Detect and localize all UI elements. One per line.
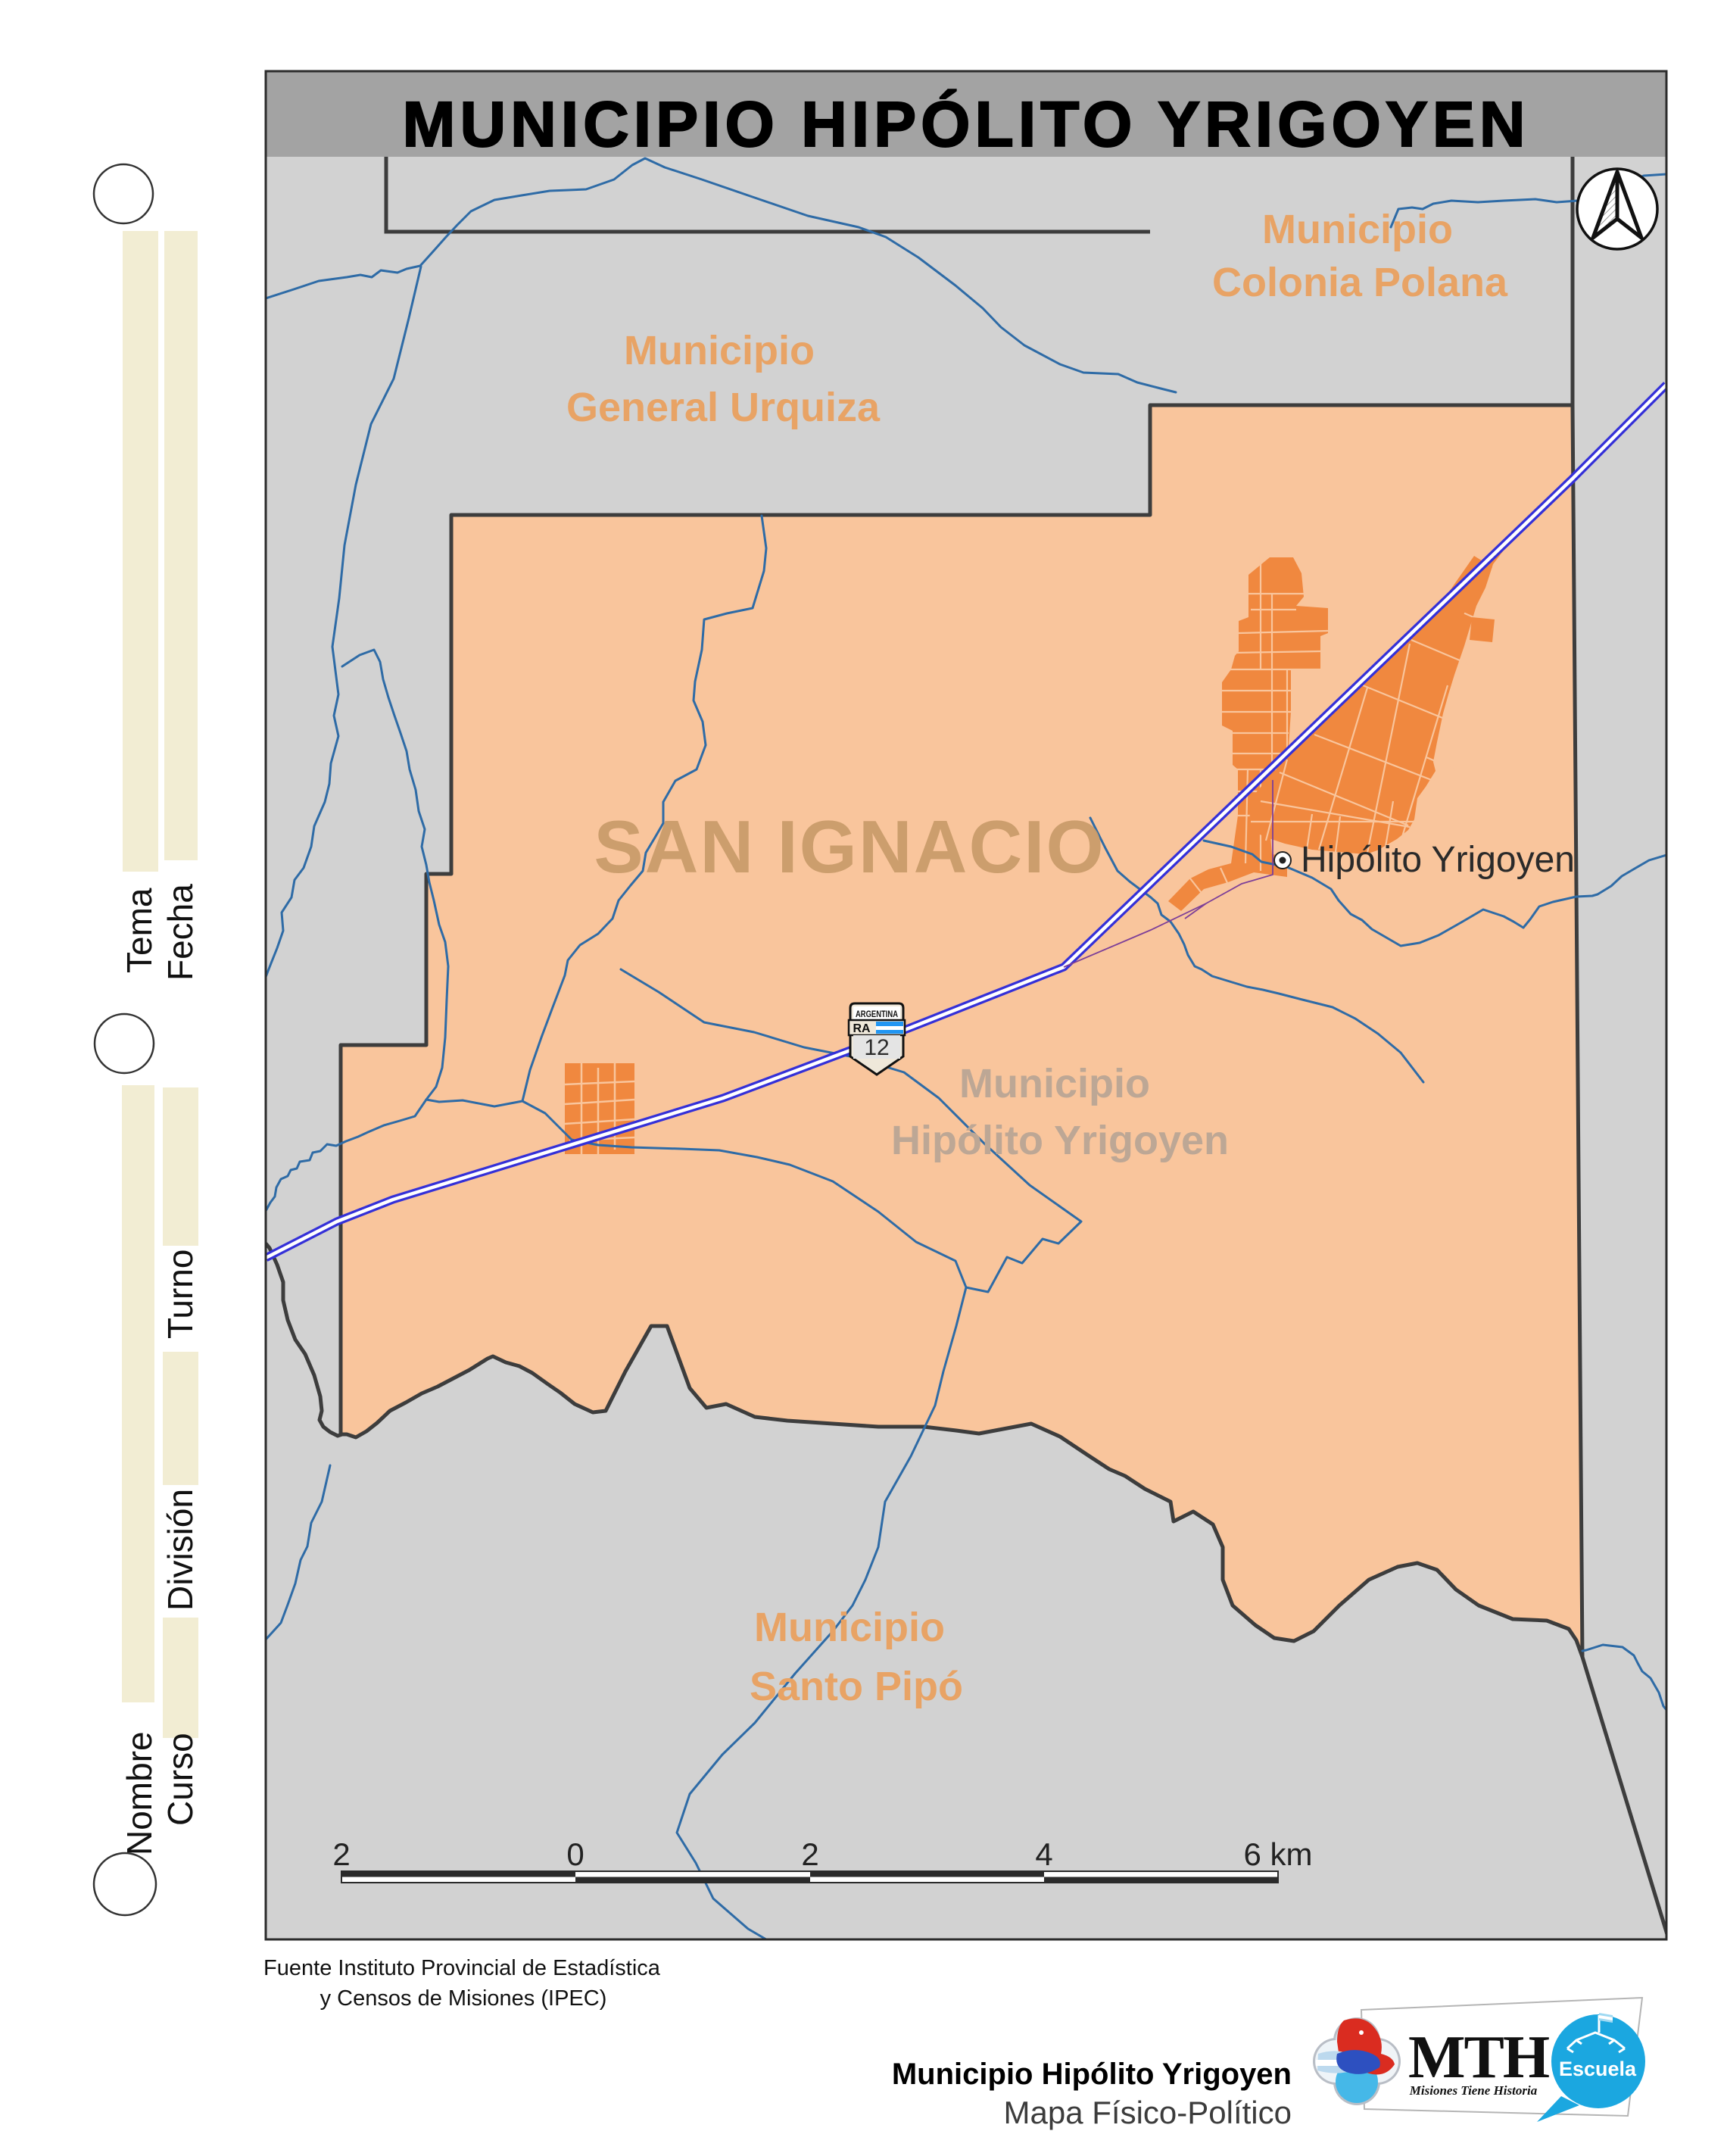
svg-text:Santo Pipó: Santo Pipó bbox=[750, 1664, 963, 1709]
svg-text:4: 4 bbox=[1035, 1836, 1052, 1872]
svg-text:ARGENTINA: ARGENTINA bbox=[856, 1009, 898, 1019]
svg-text:Fuente Instituto Provincial de: Fuente Instituto Provincial de Estadísti… bbox=[263, 1956, 661, 1980]
svg-text:Turno: Turno bbox=[161, 1250, 200, 1339]
svg-text:12: 12 bbox=[864, 1035, 889, 1060]
svg-text:RA: RA bbox=[853, 1022, 871, 1035]
svg-text:Municipio: Municipio bbox=[624, 328, 815, 373]
svg-text:Municipio Hipólito Yrigoyen: Municipio Hipólito Yrigoyen bbox=[892, 2058, 1292, 2091]
svg-text:Tema: Tema bbox=[120, 888, 159, 973]
svg-text:Nombre: Nombre bbox=[120, 1731, 159, 1855]
svg-text:Hipólito Yrigoyen: Hipólito Yrigoyen bbox=[891, 1118, 1229, 1163]
svg-text:Municipio: Municipio bbox=[1262, 207, 1453, 252]
svg-text:Fecha: Fecha bbox=[161, 884, 200, 981]
svg-text:Municipio: Municipio bbox=[959, 1061, 1150, 1106]
svg-text:Hipólito Yrigoyen: Hipólito Yrigoyen bbox=[1301, 840, 1575, 880]
svg-text:2: 2 bbox=[332, 1836, 350, 1872]
svg-text:Colonia Polana: Colonia Polana bbox=[1212, 260, 1508, 305]
svg-text:0: 0 bbox=[566, 1836, 584, 1872]
svg-text:SAN IGNACIO: SAN IGNACIO bbox=[594, 805, 1105, 888]
svg-text:2: 2 bbox=[801, 1836, 818, 1872]
svg-text:Misiones Tiene Historia: Misiones Tiene Historia bbox=[1409, 2083, 1538, 2098]
svg-text:6 km: 6 km bbox=[1243, 1836, 1312, 1872]
svg-text:Escuela: Escuela bbox=[1559, 2058, 1637, 2080]
svg-text:y Censos de Misiones (IPEC): y Censos de Misiones (IPEC) bbox=[320, 1986, 607, 2011]
svg-text:General Urquiza: General Urquiza bbox=[566, 385, 881, 430]
svg-text:División: División bbox=[161, 1489, 200, 1611]
svg-text:Mapa Físico-Político: Mapa Físico-Político bbox=[1004, 2095, 1292, 2130]
svg-text:Municipio: Municipio bbox=[754, 1605, 945, 1650]
svg-text:Curso: Curso bbox=[161, 1733, 200, 1826]
svg-text:MTH: MTH bbox=[1408, 2024, 1549, 2091]
svg-text:MUNICIPIO HIPÓLITO YRIGOYEN: MUNICIPIO HIPÓLITO YRIGOYEN bbox=[402, 89, 1529, 160]
